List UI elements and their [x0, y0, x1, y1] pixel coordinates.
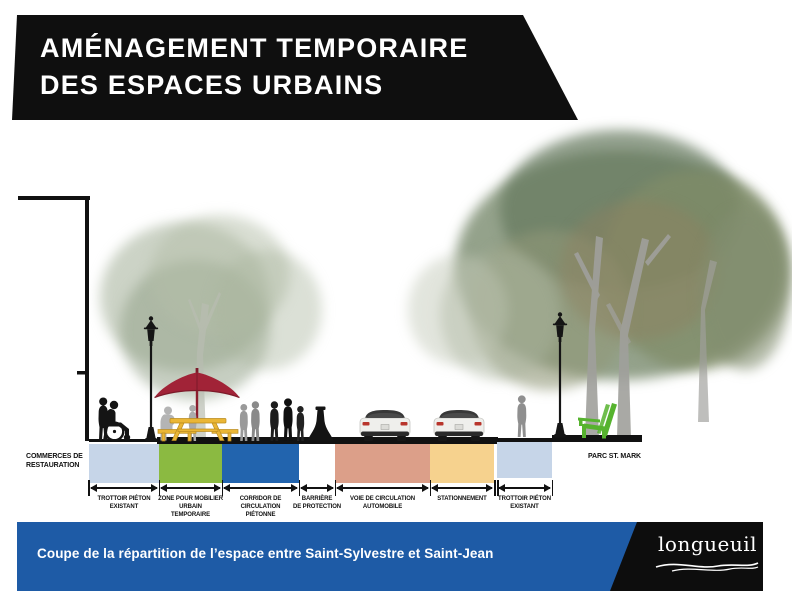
dimension-arrow [432, 487, 492, 489]
dimension-arrow [161, 487, 220, 489]
dimension-arrow [91, 487, 157, 489]
poster: AMÉNAGEMENT TEMPORAIRE DES ESPACES URBAI… [0, 0, 792, 612]
footer-caption: Coupe de la répartition de l’espace entr… [37, 546, 494, 561]
dimension-arrow [301, 487, 333, 489]
zone-boundary-tick [494, 480, 496, 496]
dimension-arrow [224, 487, 297, 489]
dimension-arrow [337, 487, 428, 489]
zone-stationnement [430, 444, 494, 483]
protection-bollard [308, 407, 334, 441]
standing-person [517, 395, 526, 437]
zone-barriere [299, 444, 335, 483]
logo-wave-icon [654, 558, 760, 578]
car-icon [434, 410, 484, 441]
zone-trottoir-droit [497, 442, 552, 478]
dimension-arrow [499, 487, 550, 489]
annotation-commerces: COMMERCES DE RESTAURATION [26, 452, 83, 470]
pedestrian-group [240, 398, 304, 441]
street-lamp-icon [553, 312, 567, 437]
poster-title-line2: DES ESPACES URBAINS [40, 70, 383, 101]
car-icon [360, 410, 410, 441]
building-outline [18, 196, 90, 441]
longueuil-logo-plate: longueuil [610, 522, 763, 591]
zone-label-voie: VOIE DE CIRCULATION AUTOMOBILE [332, 496, 433, 512]
annotation-parc-st-mark: PARC ST. MARK [588, 452, 641, 461]
zone-trottoir-gauche [89, 444, 159, 483]
zone-corridor-pietonne [222, 444, 299, 483]
zone-boundary-tick [552, 480, 554, 496]
footer-caption-bar: Coupe de la répartition de l’espace entr… [17, 522, 650, 591]
zone-mobilier-urbain [159, 444, 222, 483]
header-banner: AMÉNAGEMENT TEMPORAIRE DES ESPACES URBAI… [12, 15, 578, 120]
zone-voie-automobile [335, 444, 430, 483]
wheelchair-person [99, 397, 131, 441]
zone-label-mobilier: ZONE POUR MOBILIER URBAIN TEMPORAIRE [150, 496, 231, 519]
street-lamp-icon [144, 316, 158, 441]
poster-title-line1: AMÉNAGEMENT TEMPORAIRE [40, 33, 468, 64]
longueuil-logo: longueuil [658, 532, 757, 556]
tree-right-trunks [574, 234, 717, 438]
zone-label-trottoir-droit: TROTTOIR PIÉTON EXISTANT [489, 496, 560, 512]
